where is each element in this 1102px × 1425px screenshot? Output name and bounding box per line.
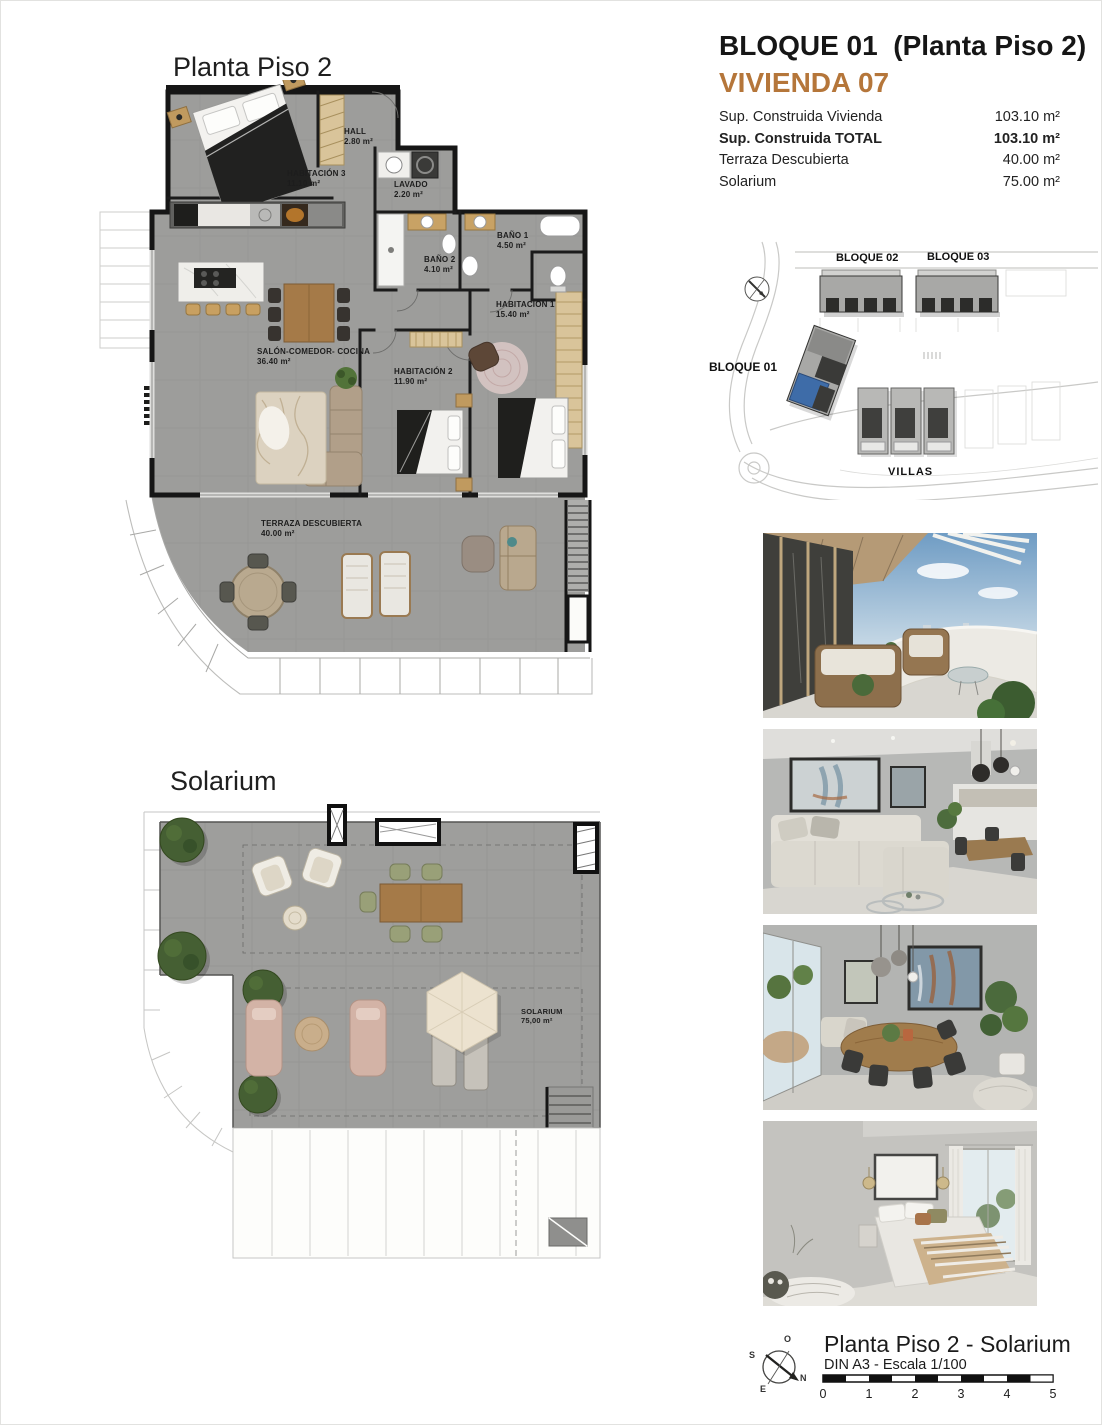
room-label-habitacion3: HABITACIÓN 3 11.10 m² — [287, 169, 346, 189]
compass-o: O — [784, 1334, 791, 1344]
spec-label: Sup. Construida TOTAL — [719, 131, 882, 147]
dining-table — [268, 284, 350, 342]
footer-scale-note: DIN A3 - Escala 1/100 — [824, 1357, 967, 1373]
room-area: 36.40 m² — [257, 357, 370, 367]
floor-plan-drawing — [95, 80, 670, 725]
solarium-plan-title: Solarium — [170, 766, 277, 797]
scale-tick-4: 4 — [1000, 1387, 1014, 1401]
spec-table: Sup. Construida Vivienda 103.10 m² Sup. … — [719, 109, 1060, 195]
scale-tick-1: 1 — [862, 1387, 876, 1401]
room-area: 4.50 m² — [497, 241, 528, 251]
page-title: BLOQUE 01 (Planta Piso 2) — [719, 30, 1086, 62]
room-name: LAVADO — [394, 180, 428, 190]
room-area: 11.90 m² — [394, 377, 453, 387]
site-label-bloque03: BLOQUE 03 — [927, 251, 989, 263]
solarium-drawing — [130, 760, 650, 1280]
site-label-bloque01: BLOQUE 01 — [709, 360, 777, 374]
room-name: HABITACIÓN 3 — [287, 169, 346, 179]
room-name: SALÓN-COMEDOR- COCINA — [257, 347, 370, 357]
unit-title: VIVIENDA 07 — [719, 67, 889, 99]
room-label-habitacion2: HABITACIÓN 2 11.90 m² — [394, 367, 453, 387]
roof-panels — [233, 1128, 600, 1258]
room-name: HABITACIÓN 1 — [496, 300, 555, 310]
rug — [255, 392, 326, 484]
spec-label: Terraza Descubierta — [719, 152, 849, 168]
compass-n: N — [800, 1373, 807, 1383]
scale-tick-0: 0 — [816, 1387, 830, 1401]
footer-compass-icon — [740, 1328, 820, 1403]
context-lines — [100, 212, 150, 348]
room-label-habitacion1: HABITACIÓN 1 15.40 m² — [496, 300, 555, 320]
photo-dining-room — [763, 925, 1037, 1110]
hall-wardrobe — [320, 95, 344, 165]
spec-value: 103.10 m² — [994, 131, 1060, 147]
spec-value: 40.00 m² — [1003, 152, 1060, 168]
floor-plan-title: Planta Piso 2 — [173, 52, 332, 83]
spec-row: Sup. Construida TOTAL 103.10 m² — [719, 131, 1060, 153]
room-area: 2.20 m² — [394, 190, 428, 200]
compass-e: E — [760, 1384, 766, 1394]
spec-row: Sup. Construida Vivienda 103.10 m² — [719, 109, 1060, 131]
room-label-bano1: BAÑO 1 4.50 m² — [497, 231, 528, 251]
scale-bar — [822, 1374, 1058, 1386]
room-name: SOLARIUM — [521, 1007, 563, 1016]
room-label-bano2: BAÑO 2 4.10 m² — [424, 255, 455, 275]
room-label-solarium: SOLARIUM 75,00 m² — [521, 1007, 563, 1025]
footer-title: Planta Piso 2 - Solarium — [824, 1331, 1071, 1358]
building-bloque02 — [820, 270, 904, 317]
spec-value: 75.00 m² — [1003, 174, 1060, 190]
site-compass-icon — [745, 277, 769, 301]
room-area: 2.80 m² — [344, 137, 373, 147]
scale-tick-3: 3 — [954, 1387, 968, 1401]
site-label-villas: VILLAS — [888, 466, 933, 478]
compass-s: S — [749, 1350, 755, 1360]
room-label-hall: HALL 2.80 m² — [344, 127, 373, 147]
building-bloque01 — [785, 325, 859, 420]
photo-terrace-view — [763, 533, 1037, 718]
spec-row: Terraza Descubierta 40.00 m² — [719, 152, 1060, 174]
room-name: HALL — [344, 127, 373, 137]
kitchen-counter — [170, 202, 345, 228]
site-label-bloque02: BLOQUE 02 — [836, 252, 898, 264]
room-label-lavado: LAVADO 2.20 m² — [394, 180, 428, 200]
photo-bedroom — [763, 1121, 1037, 1306]
room-area: 40.00 m² — [261, 529, 362, 539]
room-name: BAÑO 2 — [424, 255, 455, 265]
room-area: 4.10 m² — [424, 265, 455, 275]
room-area: 75,00 m² — [521, 1016, 563, 1025]
room-name: TERRAZA DESCUBIERTA — [261, 519, 362, 529]
scale-tick-2: 2 — [908, 1387, 922, 1401]
room-area: 15.40 m² — [496, 310, 555, 320]
room-label-terraza: TERRAZA DESCUBIERTA 40.00 m² — [261, 519, 362, 539]
site-roads — [729, 242, 1098, 500]
villas-buildings — [858, 388, 957, 457]
room-name: BAÑO 1 — [497, 231, 528, 241]
spec-value: 103.10 m² — [995, 109, 1060, 125]
stairs — [566, 500, 590, 652]
photo-living-room — [763, 729, 1037, 914]
scale-tick-5: 5 — [1046, 1387, 1060, 1401]
brochure-sheet: O S E N 0 1 2 3 4 5 Planta Piso 2 Solari… — [0, 0, 1102, 1425]
spec-label: Sup. Construida Vivienda — [719, 109, 882, 125]
building-bloque03 — [916, 270, 1000, 317]
room-area: 11.10 m² — [287, 179, 346, 189]
room-name: HABITACIÓN 2 — [394, 367, 453, 377]
spec-row: Solarium 75.00 m² — [719, 174, 1060, 196]
room-label-salon: SALÓN-COMEDOR- COCINA 36.40 m² — [257, 347, 370, 367]
spec-label: Solarium — [719, 174, 776, 190]
